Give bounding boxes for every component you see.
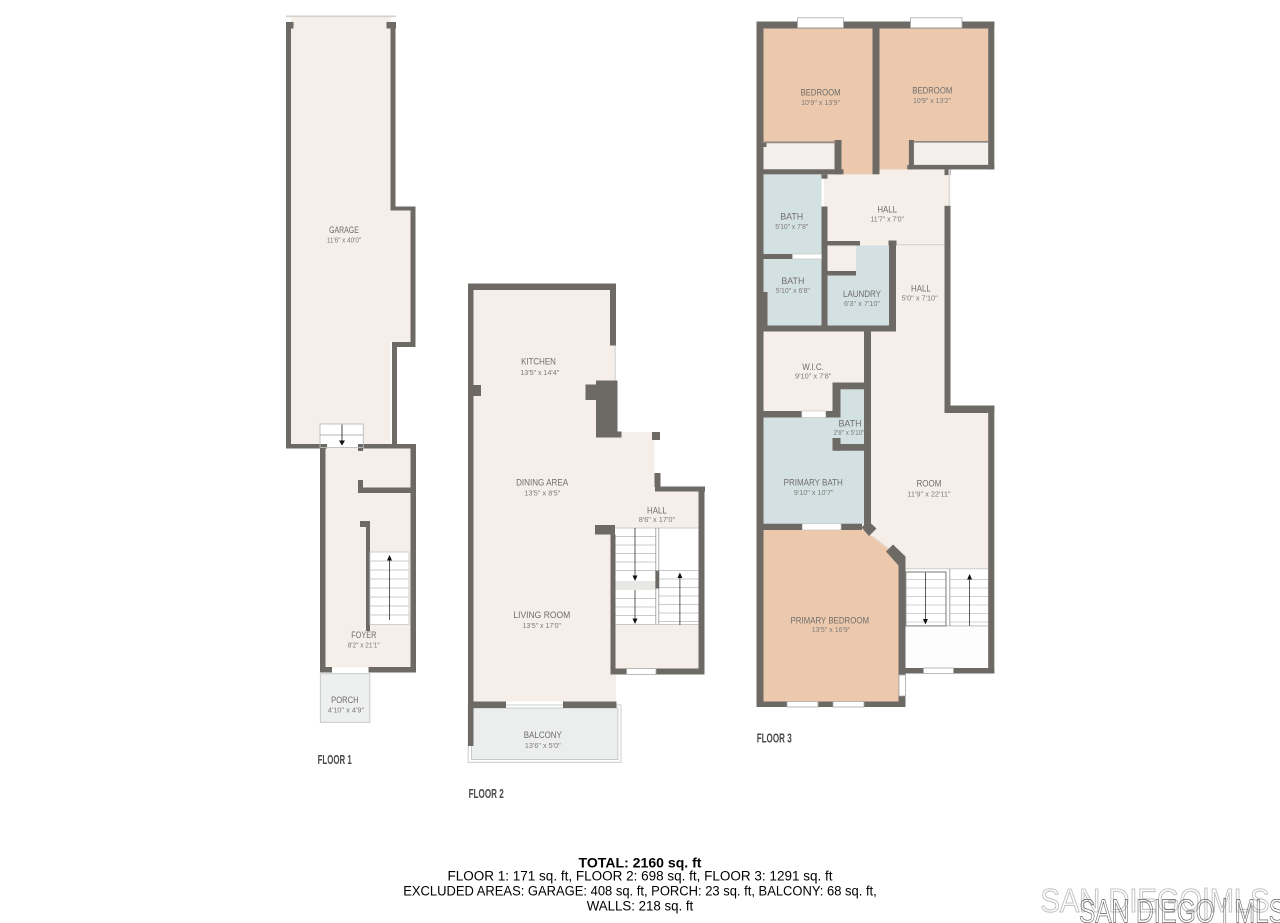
svg-text:2'8" x 5'10": 2'8" x 5'10" <box>834 428 865 437</box>
svg-text:13'6" x 5'0": 13'6" x 5'0" <box>525 741 561 750</box>
svg-text:W.I.C.: W.I.C. <box>802 362 824 372</box>
svg-text:11'7" x 7'0": 11'7" x 7'0" <box>870 214 904 223</box>
svg-text:6'3" x 7'10": 6'3" x 7'10" <box>844 299 880 308</box>
svg-text:FLOOR 1: 171 sq. ft, FLOOR 2:: FLOOR 1: 171 sq. ft, FLOOR 2: 698 sq. ft… <box>448 869 833 884</box>
svg-text:PORCH: PORCH <box>331 695 359 705</box>
svg-text:PRIMARY BATH: PRIMARY BATH <box>784 478 843 488</box>
svg-text:5'10" x 7'8": 5'10" x 7'8" <box>775 222 808 231</box>
svg-text:ROOM: ROOM <box>917 478 942 488</box>
svg-text:FOYER: FOYER <box>351 630 377 640</box>
svg-text:13'5" x 14'4": 13'5" x 14'4" <box>520 368 559 377</box>
svg-text:HALL: HALL <box>647 505 667 515</box>
svg-text:HALL: HALL <box>877 205 897 215</box>
svg-text:WALLS: 218 sq. ft: WALLS: 218 sq. ft <box>587 899 694 914</box>
svg-text:BALCONY: BALCONY <box>524 730 562 740</box>
svg-text:10'9" x 13'9": 10'9" x 13'9" <box>801 98 840 107</box>
svg-text:FLOOR 2: FLOOR 2 <box>469 787 504 801</box>
svg-text:10'9" x 13'2": 10'9" x 13'2" <box>913 96 951 105</box>
svg-text:DINING AREA: DINING AREA <box>516 477 568 487</box>
svg-text:HALL: HALL <box>911 284 931 294</box>
svg-text:FLOOR 3: FLOOR 3 <box>757 732 792 746</box>
svg-text:13'5" x 17'0": 13'5" x 17'0" <box>523 621 562 630</box>
svg-text:EXCLUDED AREAS: GARAGE: 408 sq: EXCLUDED AREAS: GARAGE: 408 sq. ft, PORC… <box>403 884 877 899</box>
svg-text:BATH: BATH <box>781 276 804 286</box>
svg-text:5'0" x 7'10": 5'0" x 7'10" <box>902 294 938 303</box>
svg-text:8'2" x 21'1": 8'2" x 21'1" <box>348 640 380 649</box>
svg-text:9'10" x 7'8": 9'10" x 7'8" <box>795 372 832 381</box>
svg-text:8'6" x 17'0": 8'6" x 17'0" <box>639 515 676 524</box>
svg-text:11'6" x 40'0": 11'6" x 40'0" <box>327 235 362 244</box>
svg-text:BEDROOM: BEDROOM <box>801 87 841 97</box>
svg-text:9'10" x 10'7": 9'10" x 10'7" <box>794 488 834 497</box>
svg-text:BATH: BATH <box>839 418 862 428</box>
svg-text:4'10" x 4'9": 4'10" x 4'9" <box>328 706 365 715</box>
svg-text:PRIMARY BEDROOM: PRIMARY BEDROOM <box>791 615 870 625</box>
svg-text:BEDROOM: BEDROOM <box>912 86 952 96</box>
svg-text:LAUNDRY: LAUNDRY <box>843 289 881 299</box>
svg-text:LIVING ROOM: LIVING ROOM <box>513 610 570 620</box>
svg-text:GARAGE: GARAGE <box>329 225 359 235</box>
svg-text:13'5" x 8'5": 13'5" x 8'5" <box>524 489 560 498</box>
svg-text:SAN DIEGO | MLS: SAN DIEGO | MLS <box>1079 893 1280 923</box>
svg-text:KITCHEN: KITCHEN <box>521 356 556 366</box>
svg-text:FLOOR 1: FLOOR 1 <box>318 753 352 767</box>
svg-text:13'5" x 16'9": 13'5" x 16'9" <box>812 625 851 634</box>
svg-text:11'9" x 22'11": 11'9" x 22'11" <box>907 489 951 498</box>
svg-text:5'10" x 6'8": 5'10" x 6'8" <box>776 286 810 295</box>
svg-text:BATH: BATH <box>780 212 803 222</box>
